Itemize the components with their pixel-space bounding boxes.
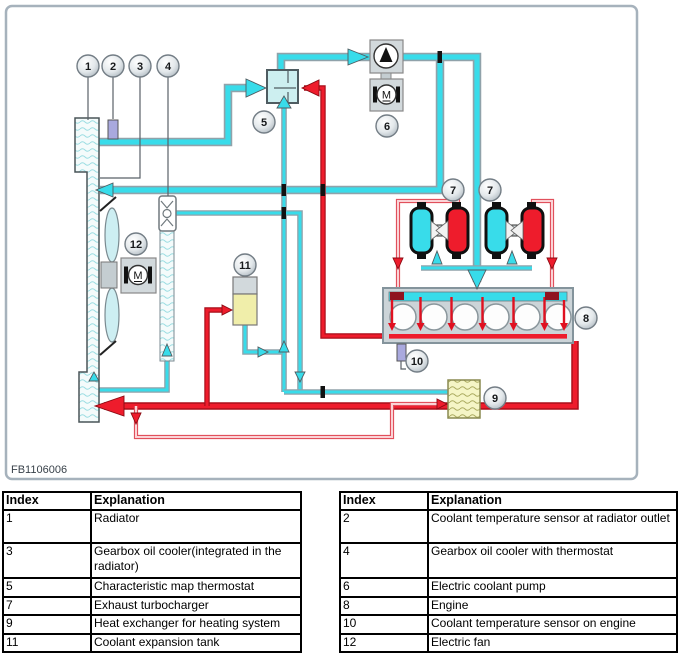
gearbox-oil-cooler-thermostat (159, 196, 176, 361)
explanation-cell: Exhaust turbocharger (91, 597, 301, 615)
table-row: 12 Electric fan (340, 634, 677, 652)
right-index-header: Index (340, 492, 428, 510)
explanation-cell: Coolant temperature sensor on engine (428, 615, 677, 634)
badge-7a-label: 7 (450, 185, 456, 197)
table-row: 4 Gearbox oil cooler with thermostat (340, 543, 677, 578)
legend-tables: Index Explanation 1 Radiator 3 Gearbox o… (2, 491, 678, 653)
index-cell: 5 (3, 578, 91, 597)
explanation-cell: Engine (428, 597, 677, 615)
badge-5-label: 5 (261, 117, 267, 129)
index-badge-7a: 7 (442, 179, 464, 201)
index-cell: 8 (340, 597, 428, 615)
index-badge-5: 5 (253, 111, 275, 133)
legend-table-right: Index Explanation 2 Coolant temperature … (339, 491, 678, 653)
table-row: 1 Radiator (3, 510, 301, 543)
fan-motor-label: M (133, 270, 142, 282)
index-cell: 10 (340, 615, 428, 634)
index-cell: 4 (340, 543, 428, 578)
badge-4-label: 4 (165, 61, 172, 73)
index-badge-3: 3 (129, 55, 151, 77)
explanation-cell: Gearbox oil cooler with thermostat (428, 543, 677, 578)
legend-table-left: Index Explanation 1 Radiator 3 Gearbox o… (2, 491, 302, 653)
page: M M (0, 0, 682, 663)
coolant-expansion-tank (233, 277, 257, 325)
explanation-cell: Electric fan (428, 634, 677, 652)
index-badge-8: 8 (575, 307, 597, 329)
index-badge-1: 1 (77, 55, 99, 77)
explanation-cell: Radiator (91, 510, 301, 543)
explanation-cell: Electric coolant pump (428, 578, 677, 597)
explanation-cell: Heat exchanger for heating system (91, 615, 301, 634)
table-row: 3 Gearbox oil cooler(integrated in the r… (3, 543, 301, 578)
heat-exchanger (448, 380, 480, 418)
index-badge-9: 9 (484, 387, 506, 409)
index-badge-12: 12 (125, 233, 147, 255)
badge-1-label: 1 (85, 61, 91, 73)
coolant-temp-sensor-engine (397, 344, 406, 361)
diagram-canvas: M M (0, 0, 682, 487)
table-row: 8 Engine (340, 597, 677, 615)
index-cell: 1 (3, 510, 91, 543)
index-cell: 3 (3, 543, 91, 578)
index-badge-10: 10 (406, 350, 428, 372)
badge-8-label: 8 (583, 313, 589, 325)
left-explanation-header: Explanation (91, 492, 301, 510)
badge-11-label: 11 (239, 260, 251, 272)
coolant-temp-sensor-radiator (108, 120, 118, 139)
index-cell: 7 (3, 597, 91, 615)
index-badge-7b: 7 (479, 179, 501, 201)
table-row: 6 Electric coolant pump (340, 578, 677, 597)
index-badge-11: 11 (234, 254, 256, 276)
cooling-system-diagram: M M (0, 0, 682, 492)
badge-12-label: 12 (130, 239, 142, 251)
index-cell: 12 (340, 634, 428, 652)
index-cell: 11 (3, 634, 91, 652)
engine (383, 288, 573, 343)
index-cell: 6 (340, 578, 428, 597)
table-row: 9 Heat exchanger for heating system (3, 615, 301, 634)
explanation-cell: Gearbox oil cooler(integrated in the rad… (91, 543, 301, 578)
table-row: 7 Exhaust turbocharger (3, 597, 301, 615)
table-row: 11 Coolant expansion tank (3, 634, 301, 652)
badge-9-label: 9 (492, 393, 498, 405)
pump-motor-label: M (382, 90, 391, 102)
left-index-header: Index (3, 492, 91, 510)
table-row: 5 Characteristic map thermostat (3, 578, 301, 597)
badge-7b-label: 7 (487, 185, 493, 197)
badge-10-label: 10 (411, 356, 423, 368)
right-explanation-header: Explanation (428, 492, 677, 510)
explanation-cell: Coolant expansion tank (91, 634, 301, 652)
table-row: 10 Coolant temperature sensor on engine (340, 615, 677, 634)
figure-code: FB1106006 (11, 464, 67, 476)
index-badge-6: 6 (376, 115, 398, 137)
explanation-cell: Characteristic map thermostat (91, 578, 301, 597)
index-badge-4: 4 (157, 55, 179, 77)
index-cell: 2 (340, 510, 428, 543)
explanation-cell: Coolant temperature sensor at radiator o… (428, 510, 677, 543)
table-row: 2 Coolant temperature sensor at radiator… (340, 510, 677, 543)
index-cell: 9 (3, 615, 91, 634)
badge-6-label: 6 (384, 121, 390, 133)
badge-3-label: 3 (137, 61, 143, 73)
index-badge-2: 2 (102, 55, 124, 77)
badge-2-label: 2 (110, 61, 116, 73)
